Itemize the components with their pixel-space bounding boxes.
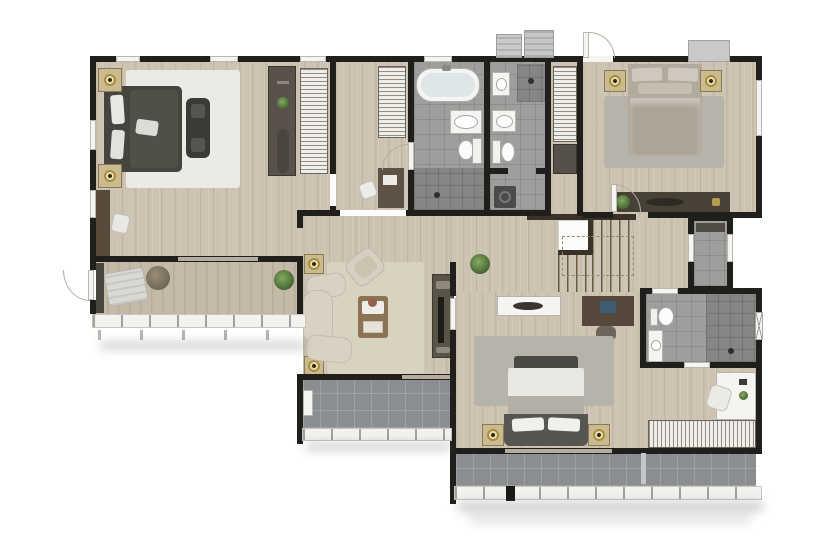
window xyxy=(116,56,140,62)
ac-unit xyxy=(524,30,554,58)
toilet-tank xyxy=(650,308,658,326)
table-lamp-icon xyxy=(609,75,621,87)
table-books xyxy=(363,321,383,333)
balcony-divider xyxy=(641,453,646,484)
floor-lamp-icon xyxy=(308,258,320,270)
utility-door-leaf xyxy=(688,234,694,262)
washer-door-icon xyxy=(499,191,511,203)
entry-door-arc xyxy=(589,32,615,58)
wall-bath2-inner xyxy=(536,168,545,174)
window xyxy=(300,56,326,62)
oval-sink-icon xyxy=(454,115,478,129)
wall-bedroom2-bottom xyxy=(583,212,613,218)
bedroom2-bed xyxy=(628,64,702,156)
pillow xyxy=(667,66,700,82)
railing-center-balcony xyxy=(302,428,452,441)
window xyxy=(210,56,238,62)
floor-plan-canvas xyxy=(0,0,835,550)
wall-balcony-left xyxy=(90,256,96,270)
sofa-bottom-arm xyxy=(305,334,353,365)
balcony-shadow xyxy=(458,502,763,511)
wall-balcony-living xyxy=(297,256,303,320)
sideboard-item xyxy=(436,281,450,289)
table-lamp-icon xyxy=(104,170,116,182)
bathroom3-door-leaf xyxy=(684,362,710,368)
bedroom3-headboard xyxy=(504,414,588,446)
master-bed-throw xyxy=(135,119,159,137)
round-pouf xyxy=(146,266,170,290)
floor-lamp-icon xyxy=(308,360,320,372)
window-cross-pane xyxy=(755,312,763,340)
wall-right-bottom xyxy=(756,368,762,454)
shower-head-icon xyxy=(434,192,440,198)
master-shelved-closet xyxy=(300,68,328,174)
toilet-tank xyxy=(472,138,482,164)
master-nightstand xyxy=(98,164,122,188)
table-lamp-icon xyxy=(104,74,116,86)
wall-bath1 xyxy=(408,62,414,142)
desk-papers xyxy=(383,175,397,185)
utility-door-leaf xyxy=(727,234,733,262)
foot-bench xyxy=(186,98,210,158)
wall-bath1 xyxy=(408,170,414,212)
wall-bathroom3-left xyxy=(640,288,646,368)
master-bed xyxy=(104,86,182,172)
tv-icon xyxy=(438,297,444,343)
dresser-gold-item xyxy=(712,198,720,206)
toilet-bowl-icon xyxy=(658,307,674,326)
plant-icon xyxy=(274,270,294,290)
dressing-closet xyxy=(378,66,406,138)
bedroom2-nightstand xyxy=(604,70,626,92)
wall-foyer-bedroom2 xyxy=(577,62,583,216)
shower-head-icon xyxy=(528,78,534,84)
bedroom3-wardrobe xyxy=(648,420,756,448)
window xyxy=(90,190,96,218)
pillow-small xyxy=(638,83,692,94)
armchair-cushion xyxy=(352,254,379,280)
dresser-tray xyxy=(646,198,684,206)
bathroom3-door-leaf xyxy=(652,288,678,294)
bedroom3-desk xyxy=(582,296,634,326)
wall-bath-bottom xyxy=(406,210,551,216)
railing-bottom-balcony xyxy=(454,486,762,500)
wall-master-hall xyxy=(330,62,336,174)
bathtub-basin xyxy=(421,73,475,97)
wall-bath2-inner xyxy=(490,168,508,174)
shower-head-icon xyxy=(728,348,734,354)
laptop-icon xyxy=(600,301,616,313)
railing-black-post xyxy=(506,486,515,501)
master-vanity xyxy=(450,110,482,134)
coffee-table xyxy=(358,296,388,338)
bathroom2-basin xyxy=(492,72,510,96)
balcony-shadow xyxy=(306,443,451,450)
cabinet-runner xyxy=(277,129,289,173)
master-bed-pillow xyxy=(110,130,125,160)
wall-bath2-foyer xyxy=(545,62,551,212)
tub-faucet-icon xyxy=(442,65,451,71)
balcony-door-arc xyxy=(63,270,90,301)
master-wardrobe-cabinet xyxy=(268,66,296,176)
master-bed-pillow xyxy=(110,95,125,125)
bedroom3-sideboard xyxy=(497,296,561,316)
toilet-tank xyxy=(492,140,501,164)
chaise-lounge xyxy=(103,267,148,307)
toilet-bowl-icon xyxy=(501,142,515,162)
window xyxy=(756,80,762,136)
balcony-bottom-floor xyxy=(456,452,756,486)
bedroom2-duvet xyxy=(630,98,700,154)
bedroom2-nightstand xyxy=(700,70,722,92)
table-lamp-icon xyxy=(487,429,499,441)
round-sink-icon xyxy=(651,340,661,351)
round-sink-icon xyxy=(496,78,507,91)
sliding-door xyxy=(505,449,612,453)
floor-lamp xyxy=(304,254,324,274)
wall-left xyxy=(90,56,96,262)
bedroom3-door-leaf xyxy=(450,298,456,330)
sliding-door xyxy=(402,375,450,379)
bathroom2-vanity xyxy=(492,110,516,132)
balcony-planter xyxy=(96,263,104,313)
sideboard-item xyxy=(436,347,450,353)
pillow xyxy=(548,417,581,432)
table-lamp-icon xyxy=(593,429,605,441)
plant-icon xyxy=(470,254,490,274)
table-lamp-icon xyxy=(705,75,717,87)
master-shower-floor xyxy=(414,168,484,210)
balcony-shadow xyxy=(100,342,305,349)
plant-icon xyxy=(277,97,289,109)
sideboard-bowl xyxy=(513,302,543,310)
wall-bath1-bath2 xyxy=(484,62,490,212)
ac-unit xyxy=(496,34,522,58)
ac-ledge xyxy=(688,40,730,62)
desk-item xyxy=(739,379,747,385)
bench-pillow xyxy=(191,104,205,118)
balcony-center-floor xyxy=(303,380,450,428)
bedroom3-nightstand xyxy=(588,424,610,446)
bench-pillow xyxy=(191,138,205,152)
window xyxy=(90,120,96,150)
plant-icon xyxy=(739,391,748,400)
master-wall-desk xyxy=(96,190,110,256)
ground-shadow xyxy=(470,514,750,524)
oval-sink-icon xyxy=(496,115,513,128)
sliding-door xyxy=(178,257,258,261)
stair-walk-line xyxy=(562,236,634,276)
railing-posts xyxy=(98,330,298,340)
wall-hall-living xyxy=(297,210,340,216)
railing-left-balcony xyxy=(92,314,306,328)
bedroom3-nightstand xyxy=(482,424,504,446)
foyer-closet xyxy=(553,66,577,142)
dressing-desk xyxy=(378,168,404,208)
bath1-door-leaf xyxy=(408,142,414,170)
master-nightstand xyxy=(98,68,122,92)
wall-stub xyxy=(297,210,303,228)
window xyxy=(424,56,452,62)
shoe-cabinet xyxy=(553,144,577,174)
wall-living-right xyxy=(450,262,456,296)
bathtub xyxy=(416,68,480,102)
flowers-icon xyxy=(368,298,377,307)
pillow xyxy=(631,66,664,82)
washer xyxy=(494,186,516,208)
utility-shelf xyxy=(696,223,725,232)
wall-balcony-left xyxy=(90,300,96,314)
utility-box xyxy=(303,390,313,416)
bathroom3-vanity xyxy=(648,330,663,362)
cabinet-handle xyxy=(277,81,289,84)
pillow xyxy=(512,417,545,432)
